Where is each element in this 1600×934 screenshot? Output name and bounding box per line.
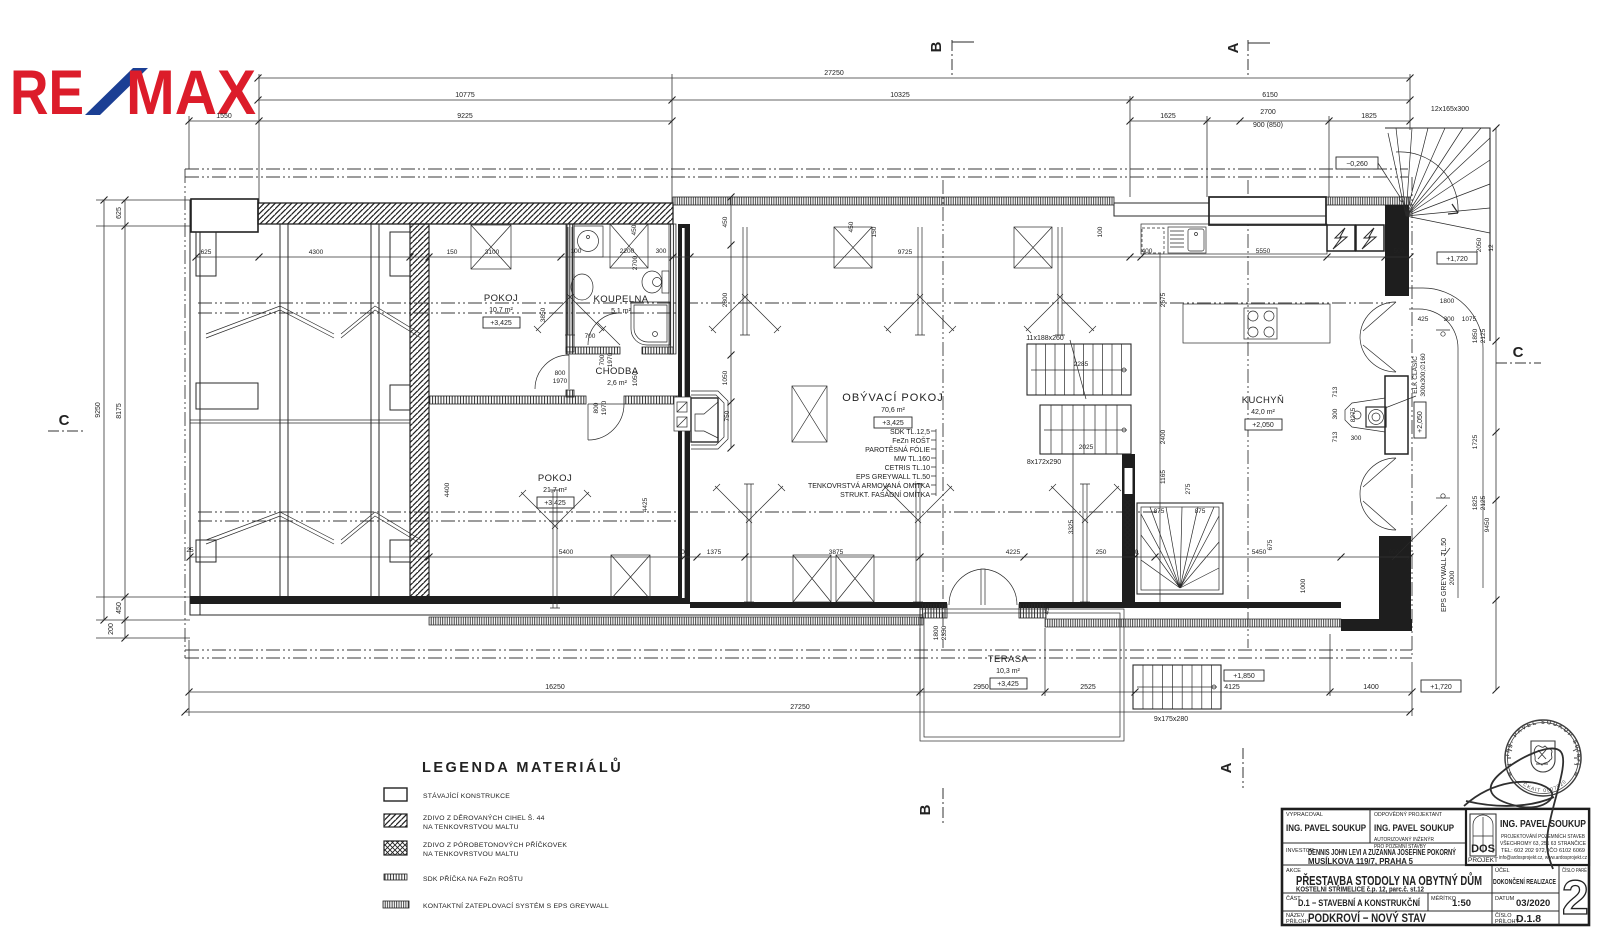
svg-text:625: 625 [201,249,212,256]
svg-text:STRUKT. FASÁDNÍ OMÍTKA: STRUKT. FASÁDNÍ OMÍTKA [840,490,930,499]
svg-text:300: 300 [1332,408,1339,419]
svg-text:NA TENKOVRSTVOU MALTU: NA TENKOVRSTVOU MALTU [423,851,519,858]
svg-text:11x188x260: 11x188x260 [1026,335,1064,342]
svg-text:FeZn ROŠT: FeZn ROŠT [892,436,930,445]
svg-text:ZDIVO Z PÓROBETONOVÝCH PŘÍČKOV: ZDIVO Z PÓROBETONOVÝCH PŘÍČKOVEK [423,840,567,849]
svg-text:5,1 m²: 5,1 m² [611,308,632,315]
svg-text:300: 300 [678,549,689,556]
svg-text:VYPRACOVAL: VYPRACOVAL [1286,812,1323,818]
svg-text:1:50: 1:50 [1452,898,1471,909]
svg-text:KOSTELNÍ STŘIMELICE č.p. 12, p: KOSTELNÍ STŘIMELICE č.p. 12, parc.č. st.… [1296,885,1424,894]
svg-text:A: A [1225,42,1242,53]
svg-text:ZDIVO Z DĚROVANÝCH CIHEL Š. 44: ZDIVO Z DĚROVANÝCH CIHEL Š. 44 [423,813,545,822]
svg-text:POKOJ: POKOJ [538,473,572,484]
svg-text:info@ardosprojekt.cz, www.ardo: info@ardosprojekt.cz, www.ardosprojekt.c… [1499,855,1587,861]
svg-text:TERASA: TERASA [988,654,1029,665]
svg-text:ÚČEL: ÚČEL [1495,867,1510,874]
svg-text:TENKOVRSTVÁ ARMOVANÁ OMÍTKA: TENKOVRSTVÁ ARMOVANÁ OMÍTKA [808,481,930,490]
svg-text:4425: 4425 [642,497,649,512]
svg-text:PROJEKTOVÁNÍ POZEMNÍCH STAVEB: PROJEKTOVÁNÍ POZEMNÍCH STAVEB [1501,833,1585,840]
svg-text:SDK TL.12,5: SDK TL.12,5 [890,429,930,436]
svg-text:ČÍSLO: ČÍSLO [1495,912,1512,919]
svg-text:1165: 1165 [1160,470,1167,484]
svg-text:PROJEKT: PROJEKT [1468,857,1498,864]
svg-text:4300: 4300 [309,249,324,256]
svg-text:9225: 9225 [457,113,473,120]
svg-text:+3,425: +3,425 [490,320,512,327]
svg-text:AUTORIZOVANÝ INŽENÝR: AUTORIZOVANÝ INŽENÝR [1374,835,1434,843]
svg-text:5550: 5550 [1256,248,1271,255]
svg-text:400: 400 [1142,248,1153,255]
svg-text:1970: 1970 [607,352,614,367]
svg-text:9450: 9450 [1484,517,1491,532]
svg-text:B: B [928,41,945,52]
svg-text:2675: 2675 [1160,292,1167,307]
svg-text:450: 450 [722,216,729,227]
svg-text:2350: 2350 [941,625,948,640]
svg-text:1000: 1000 [1300,578,1307,593]
svg-text:2125: 2125 [1480,495,1487,510]
svg-text:+3,425: +3,425 [544,500,566,507]
svg-text:150: 150 [447,249,458,256]
svg-text:675: 675 [1267,539,1274,550]
svg-text:2400: 2400 [1160,429,1167,444]
svg-text:2800: 2800 [722,292,729,307]
svg-text:5400: 5400 [559,549,574,556]
svg-text:1050: 1050 [722,370,729,385]
svg-text:200: 200 [108,623,115,635]
svg-text:SDK PŘÍČKA NA FeZn ROŠTU: SDK PŘÍČKA NA FeZn ROŠTU [423,874,523,883]
svg-text:300: 300 [656,248,667,255]
svg-text:DOS: DOS [1471,843,1495,855]
svg-text:450: 450 [116,602,123,614]
svg-text:CETRIS TL.10: CETRIS TL.10 [885,465,930,472]
svg-text:2525: 2525 [1080,684,1096,691]
svg-text:450: 450 [631,224,638,235]
svg-text:150: 150 [871,226,878,237]
svg-text:NÁZEV: NÁZEV [1286,912,1305,919]
svg-text:300: 300 [1351,435,1362,442]
svg-text:PAROTĚSNÁ FÓLIE: PAROTĚSNÁ FÓLIE [865,445,930,454]
svg-text:2700: 2700 [632,255,639,270]
svg-text:875: 875 [1154,508,1165,515]
svg-text:PŘÍLOHY: PŘÍLOHY [1286,917,1310,925]
svg-text:1075: 1075 [1462,316,1477,323]
svg-text:4225: 4225 [1006,549,1021,556]
svg-text:1825: 1825 [1472,495,1479,510]
svg-text:9250: 9250 [95,402,102,418]
svg-text:600: 600 [1389,549,1400,556]
svg-text:450: 450 [848,221,855,232]
svg-text:8275: 8275 [1350,407,1357,422]
svg-text:300x300;∅160: 300x300;∅160 [1420,353,1427,397]
svg-text:2025: 2025 [1079,444,1094,451]
svg-text:EPS GREYWALL TL.50: EPS GREYWALL TL.50 [1441,538,1448,612]
svg-text:100: 100 [571,248,582,255]
svg-text:10325: 10325 [890,92,910,99]
svg-text:STÁVAJÍCÍ KONSTRUKCE: STÁVAJÍCÍ KONSTRUKCE [423,791,510,800]
svg-text:875: 875 [1195,508,1206,515]
svg-text:C: C [59,412,70,429]
svg-text:ING. PAVEL SOUKUP: ING. PAVEL SOUKUP [1374,823,1455,834]
svg-text:2050: 2050 [1476,237,1483,252]
svg-text:300: 300 [1444,316,1455,323]
svg-text:16250: 16250 [545,684,565,691]
svg-text:10,7 m²: 10,7 m² [489,307,513,314]
svg-text:10,3 m²: 10,3 m² [996,668,1020,675]
svg-text:1050: 1050 [632,371,639,386]
svg-text:2950: 2950 [973,684,989,691]
svg-text:+1,850: +1,850 [1233,673,1255,680]
svg-text:ING. PAVEL SOUKUP: ING. PAVEL SOUKUP [1286,823,1367,834]
svg-text:RE: RE [10,58,84,128]
svg-text:TEL: 602 202 972, IČO 6102 606: TEL: 602 202 972, IČO 6102 6069 [1501,847,1585,854]
svg-text:4125: 4125 [1224,684,1240,691]
svg-text:D.1 − STAVEBNÍ A KONSTRUKČNÍ: D.1 − STAVEBNÍ A KONSTRUKČNÍ [1298,897,1420,908]
svg-text:700: 700 [585,333,596,340]
svg-text:500: 500 [1394,248,1405,255]
svg-text:A: A [1218,762,1235,773]
svg-text:PODKROVÍ − NOVÝ STAV: PODKROVÍ − NOVÝ STAV [1308,910,1426,925]
svg-text:+2,050: +2,050 [1417,411,1424,433]
svg-text:2125: 2125 [1480,328,1487,343]
svg-text:625: 625 [116,207,123,219]
svg-text:MAX: MAX [126,58,256,128]
svg-text:1725: 1725 [1472,434,1479,449]
svg-text:EPS GREYWALL TL.50: EPS GREYWALL TL.50 [856,474,930,481]
svg-text:ODPOVĚDNÝ PROJEKTANT: ODPOVĚDNÝ PROJEKTANT [1374,810,1443,818]
svg-text:2700: 2700 [1260,109,1276,116]
svg-text:900 (850): 900 (850) [1253,122,1283,129]
svg-text:2200: 2200 [620,248,635,255]
svg-text:42,0 m²: 42,0 m² [1251,409,1275,416]
svg-text:3875: 3875 [829,549,844,556]
svg-text:DOKONČENÍ REALIZACE: DOKONČENÍ REALIZACE [1493,877,1556,886]
svg-text:+3,425: +3,425 [997,681,1019,688]
svg-text:9x175x280: 9x175x280 [1154,716,1188,723]
svg-text:750: 750 [724,410,731,421]
svg-text:1800: 1800 [933,625,940,640]
svg-text:425: 425 [1418,316,1429,323]
svg-text:713: 713 [1332,386,1339,397]
svg-text:2285: 2285 [1074,361,1089,368]
svg-text:5450: 5450 [1252,549,1267,556]
svg-text:100: 100 [1097,226,1104,237]
svg-text:+2,050: +2,050 [1252,422,1274,429]
svg-text:12: 12 [1488,244,1495,252]
svg-text:713: 713 [1332,431,1339,442]
svg-text:LEGENDA MATERIÁLŮ: LEGENDA MATERIÁLŮ [422,757,623,776]
svg-text:+1,720: +1,720 [1446,256,1468,263]
svg-text:3100: 3100 [485,249,500,256]
svg-text:25: 25 [186,547,194,554]
svg-text:1850: 1850 [1472,328,1479,343]
svg-text:1800: 1800 [1440,298,1455,305]
svg-text:800: 800 [593,402,600,413]
svg-text:3325: 3325 [1068,519,1075,534]
svg-text:250: 250 [1096,549,1107,556]
svg-text:3850: 3850 [540,307,547,322]
svg-text:1970: 1970 [553,378,568,385]
svg-text:DATUM: DATUM [1495,896,1515,902]
svg-text:KONTAKTNÍ ZATEPLOVACÍ SYSTÉM S: KONTAKTNÍ ZATEPLOVACÍ SYSTÉM S EPS GREYW… [423,901,609,910]
svg-text:B: B [917,804,934,815]
svg-text:KOUPELNA: KOUPELNA [594,294,649,305]
svg-text:MUSÍLKOVA 119/7, PRAHA 5: MUSÍLKOVA 119/7, PRAHA 5 [1308,856,1413,866]
svg-text:450: 450 [1044,603,1051,614]
svg-text:2,6 m²: 2,6 m² [607,380,628,387]
svg-text:+3,425: +3,425 [882,420,904,427]
svg-text:4400: 4400 [444,482,451,497]
svg-text:VŠECHROMY 63, 251 63 STRANČICE: VŠECHROMY 63, 251 63 STRANČICE [1500,840,1586,847]
svg-text:9725: 9725 [898,249,913,256]
svg-text:27250: 27250 [790,704,810,711]
svg-text:2000: 2000 [1449,570,1456,585]
svg-text:1400: 1400 [1363,684,1379,691]
svg-text:8175: 8175 [116,403,123,419]
svg-text:21,7 m²: 21,7 m² [543,487,567,494]
svg-text:800: 800 [555,370,566,377]
svg-text:275: 275 [1185,483,1192,494]
svg-text:C: C [1513,344,1524,361]
svg-text:1970: 1970 [601,400,608,415]
svg-text:6150: 6150 [1262,92,1278,99]
svg-text:1625: 1625 [1160,113,1176,120]
svg-text:70,6 m²: 70,6 m² [881,407,905,414]
svg-text:−0,260: −0,260 [1346,161,1368,168]
svg-text:POKOJ: POKOJ [484,293,518,304]
svg-text:OBÝVACÍ POKOJ: OBÝVACÍ POKOJ [842,391,943,404]
svg-text:27250: 27250 [824,70,844,77]
svg-text:2: 2 [1562,872,1589,925]
svg-text:+1,720: +1,720 [1430,684,1452,691]
svg-text:1825: 1825 [1361,113,1377,120]
svg-text:400: 400 [1128,549,1139,556]
svg-text:NA TENKOVRSTVOU MALTU: NA TENKOVRSTVOU MALTU [423,824,519,831]
svg-text:03/2020: 03/2020 [1516,898,1550,909]
svg-text:10775: 10775 [455,92,475,99]
svg-text:8x172x290: 8x172x290 [1027,459,1061,466]
svg-text:ING. PAVEL SOUKUP: ING. PAVEL SOUKUP [1500,818,1586,830]
svg-text:KUCHYŇ: KUCHYŇ [1242,395,1285,406]
svg-text:D.1.8: D.1.8 [1516,913,1541,925]
svg-text:700: 700 [599,354,606,365]
svg-text:12x165x300: 12x165x300 [1431,106,1469,113]
svg-text:ELK CLASIC: ELK CLASIC [1412,356,1419,394]
svg-text:1550: 1550 [216,113,232,120]
svg-text:MW TL.160: MW TL.160 [894,456,930,463]
svg-text:1375: 1375 [707,549,722,556]
